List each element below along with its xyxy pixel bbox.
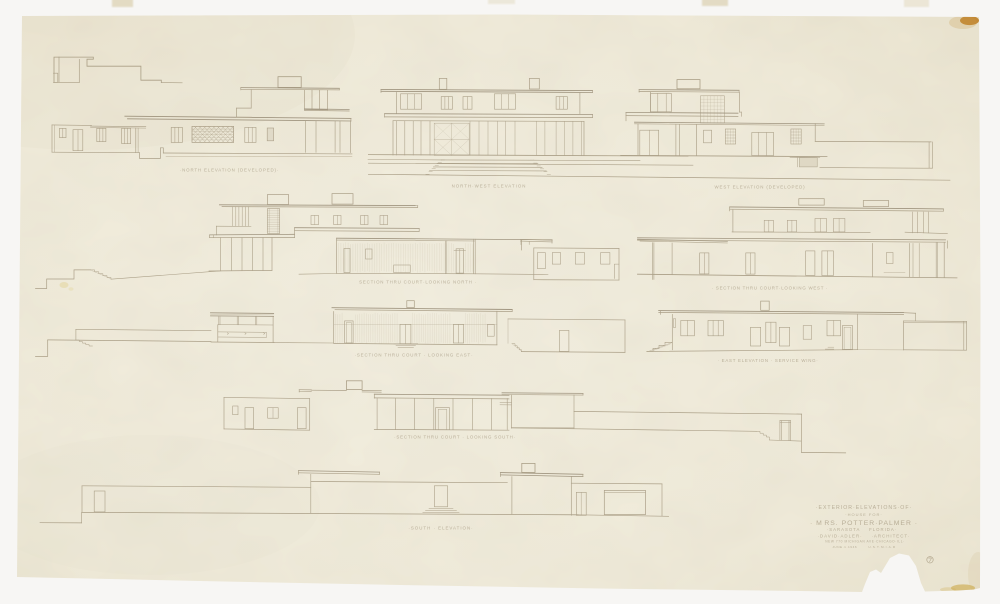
svg-text:· M RS. POTTER·PALMER ·: · M RS. POTTER·PALMER · [810, 520, 918, 527]
svg-text:·EXTERIOR·ELEVATIONS·OF·: ·EXTERIOR·ELEVATIONS·OF· [816, 505, 912, 511]
svg-text:SECTION THRU COURT·LOOKING NOR: SECTION THRU COURT·LOOKING NORTH · [359, 280, 477, 285]
svg-text:· SECTION THRU COURT·LOOKING W: · SECTION THRU COURT·LOOKING WEST · [712, 286, 829, 291]
svg-text:·DAVID·ADLER· ·ARCHITECT·: ·DAVID·ADLER· ·ARCHITECT· [817, 533, 910, 538]
svg-text:JUNE·1·1946 U·S·T·M·I·A: JUNE·1·1946 U·S·T·M·I·A·R [832, 545, 896, 549]
svg-text:·SOUTH · ELEVATION·: ·SOUTH · ELEVATION· [408, 526, 473, 531]
svg-text:·SECTION THRU COURT · LOOKING: ·SECTION THRU COURT · LOOKING SOUTH· [394, 435, 516, 440]
svg-text:NEW 770 MICHIGAN AVE·CHICAGO·I: NEW 770 MICHIGAN AVE·CHICAGO·ILL· [825, 540, 905, 544]
svg-text:NORTH·WEST ELEVATION: NORTH·WEST ELEVATION [452, 184, 527, 189]
svg-text:·NORTH ELEVATION (DEVELOPED)·: ·NORTH ELEVATION (DEVELOPED)· [180, 168, 279, 173]
svg-text:WEST ELEVATION (DEVELOPED): WEST ELEVATION (DEVELOPED) [715, 185, 806, 190]
svg-text:· EAST ELEVATION · SERVICE WIN: · EAST ELEVATION · SERVICE WING· [717, 358, 818, 363]
svg-text:·HOUSE FOR·: ·HOUSE FOR· [845, 512, 882, 517]
svg-text:·SECTION THRU COURT · LOOKING: ·SECTION THRU COURT · LOOKING EAST· [355, 353, 474, 358]
svg-text:·SARASOTA FLORIDA·: ·SARASOTA FLORIDA· [827, 527, 897, 532]
